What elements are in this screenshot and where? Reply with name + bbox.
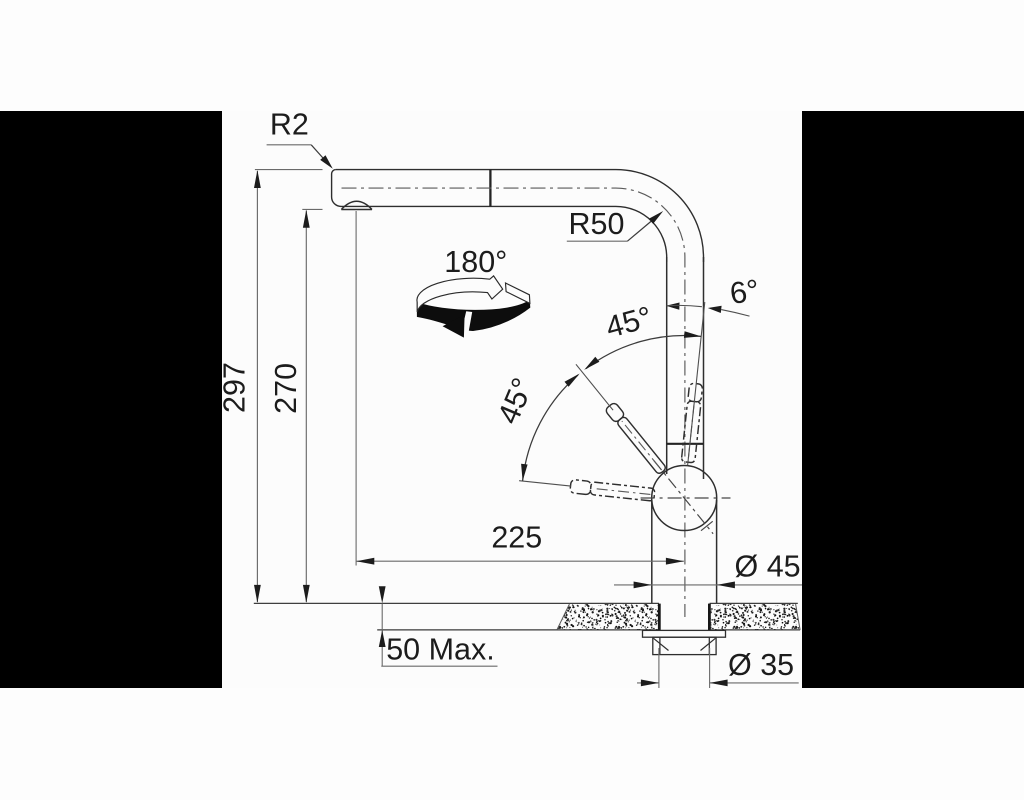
- svg-text:270: 270: [269, 363, 303, 414]
- svg-text:50 Max.: 50 Max.: [386, 633, 495, 667]
- svg-text:180°: 180°: [444, 245, 507, 279]
- svg-text:297: 297: [218, 362, 252, 413]
- svg-text:6°: 6°: [728, 273, 762, 311]
- svg-text:Ø 35: Ø 35: [728, 648, 794, 682]
- svg-text:R2: R2: [270, 108, 309, 142]
- svg-text:R50: R50: [569, 207, 625, 241]
- svg-text:Ø 45: Ø 45: [735, 549, 801, 583]
- svg-text:225: 225: [491, 521, 542, 555]
